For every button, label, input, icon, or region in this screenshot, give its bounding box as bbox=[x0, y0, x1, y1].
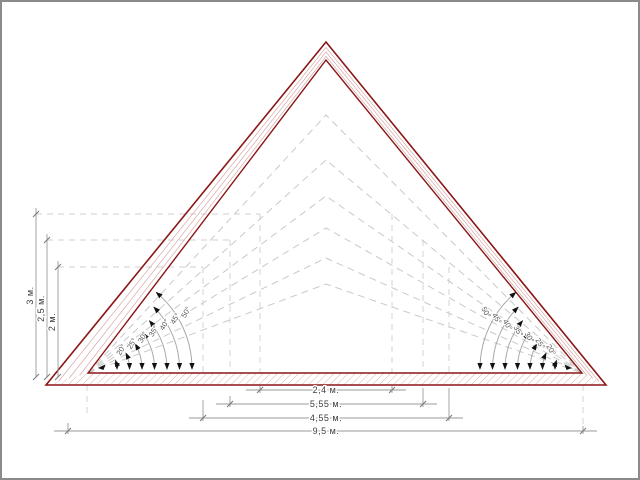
width-dimensions: 2,4 м. 5,55 м. 4,55 м. 9,5 м. bbox=[54, 385, 597, 436]
angle-label: 50° bbox=[179, 305, 192, 319]
width-dim-4-55m: 4,55 м. bbox=[310, 413, 342, 423]
drawing-surface: 20° 25° 30° 35° 40° 45° 50° 20° 25° 30° … bbox=[0, 0, 640, 480]
eave-hatch-band bbox=[46, 373, 606, 385]
height-dim-2m: 2 м. bbox=[47, 313, 57, 331]
left-angle-labels: 20° 25° 30° 35° 40° 45° 50° bbox=[114, 305, 192, 357]
width-dim-2-4m: 2,4 м. bbox=[313, 385, 340, 395]
right-angle-labels: 20° 25° 30° 35° 40° 45° 50° bbox=[479, 305, 557, 357]
width-dim-5-55m: 5,55 м. bbox=[310, 399, 342, 409]
height-dimensions: 3 м. 2,5 м. 2 м. bbox=[25, 208, 61, 380]
width-dim-9-5m: 9,5 м. bbox=[313, 426, 340, 436]
height-dim-3m: 3 м. bbox=[25, 286, 35, 304]
roof-pitch-diagram: 20° 25° 30° 35° 40° 45° 50° 20° 25° 30° … bbox=[0, 0, 640, 480]
angle-label: 50° bbox=[479, 305, 492, 319]
height-dim-2-5m: 2,5 м. bbox=[36, 295, 46, 322]
